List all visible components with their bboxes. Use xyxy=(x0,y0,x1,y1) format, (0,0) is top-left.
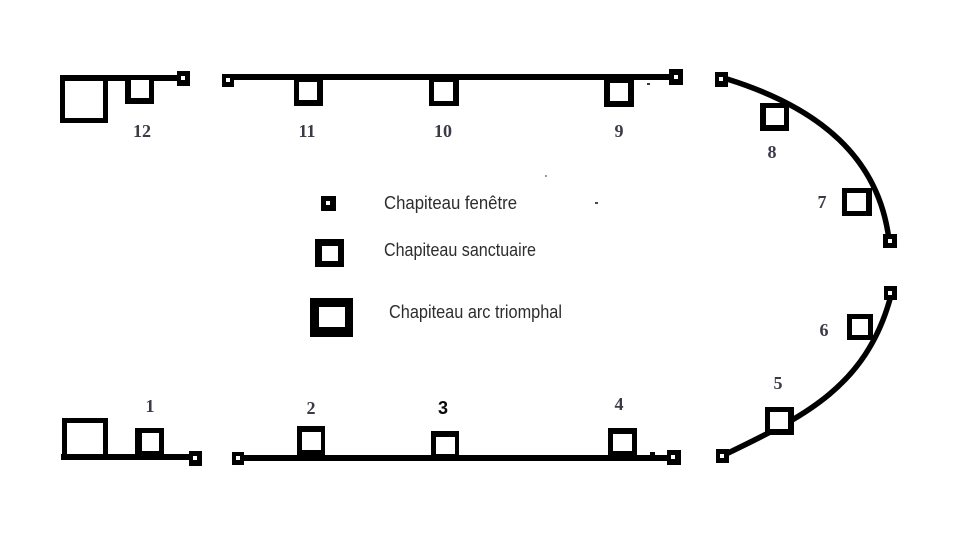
svg-text:10: 10 xyxy=(434,121,452,141)
svg-text:5: 5 xyxy=(774,373,783,393)
svg-text:7: 7 xyxy=(818,192,827,212)
svg-text:Chapiteau arc triomphal: Chapiteau arc triomphal xyxy=(389,302,562,322)
svg-text:6: 6 xyxy=(820,320,829,340)
svg-text:Chapiteau fenêtre: Chapiteau fenêtre xyxy=(384,193,517,213)
svg-text:1: 1 xyxy=(146,396,155,416)
svg-text:Chapiteau sanctuaire: Chapiteau sanctuaire xyxy=(384,240,536,260)
svg-text:4: 4 xyxy=(615,394,624,414)
svg-text:12: 12 xyxy=(133,121,151,141)
svg-text:2: 2 xyxy=(307,398,316,418)
svg-text:11: 11 xyxy=(298,121,315,141)
svg-text:9: 9 xyxy=(615,121,624,141)
svg-text:3: 3 xyxy=(438,398,448,418)
svg-text:8: 8 xyxy=(768,142,777,162)
